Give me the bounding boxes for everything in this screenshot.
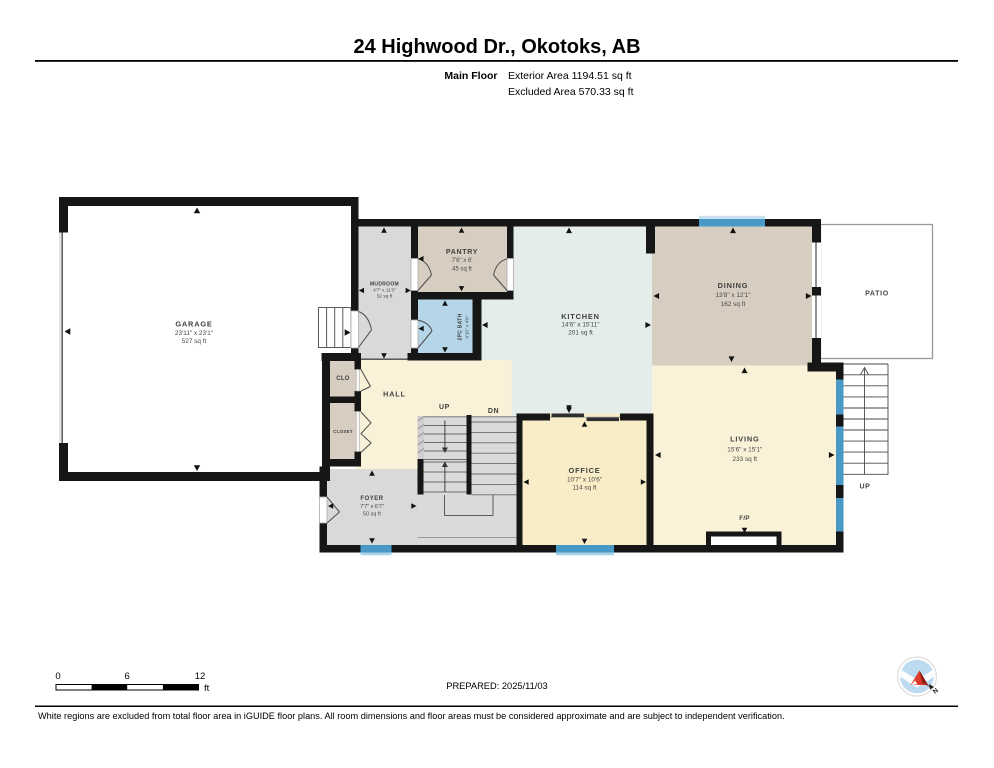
svg-text:13'8" x 12'1": 13'8" x 12'1" (715, 292, 750, 299)
svg-text:White regions are excluded fro: White regions are excluded from total fl… (38, 711, 785, 721)
svg-text:OFFICE: OFFICE (569, 466, 601, 475)
svg-text:PREPARED: 2025/11/03: PREPARED: 2025/11/03 (446, 681, 547, 691)
svg-text:DINING: DINING (718, 281, 749, 290)
svg-text:DN: DN (488, 408, 499, 415)
svg-text:0: 0 (55, 671, 60, 682)
svg-text:CLOSET: CLOSET (333, 429, 353, 434)
svg-text:F/P: F/P (739, 515, 750, 522)
svg-text:15'6" x 15'1": 15'6" x 15'1" (727, 446, 762, 453)
svg-text:4'10" x 4'6": 4'10" x 4'6" (465, 315, 470, 338)
svg-text:14'6" x 15'11": 14'6" x 15'11" (561, 322, 599, 329)
svg-text:7'7" x 6'7": 7'7" x 6'7" (360, 504, 384, 510)
svg-text:24 Highwood Dr., Okotoks, AB: 24 Highwood Dr., Okotoks, AB (353, 36, 640, 58)
svg-text:HALL: HALL (383, 390, 406, 399)
svg-text:201 sq ft: 201 sq ft (568, 329, 593, 336)
svg-text:162 sq ft: 162 sq ft (721, 301, 746, 308)
svg-text:50 sq ft: 50 sq ft (363, 511, 381, 517)
svg-text:12: 12 (195, 671, 206, 682)
svg-text:PATIO: PATIO (865, 291, 889, 298)
svg-text:2PC BATH: 2PC BATH (458, 313, 464, 340)
svg-text:PANTRY: PANTRY (446, 249, 478, 256)
svg-text:KITCHEN: KITCHEN (561, 312, 599, 321)
svg-text:52 sq ft: 52 sq ft (377, 294, 393, 299)
svg-text:527 sq ft: 527 sq ft (182, 338, 207, 345)
svg-text:6: 6 (125, 671, 130, 682)
svg-text:10'7" x 10'6": 10'7" x 10'6" (567, 476, 602, 483)
svg-text:FOYER: FOYER (360, 496, 383, 502)
svg-text:GARAGE: GARAGE (175, 320, 212, 329)
svg-text:Excluded Area 570.33 sq ft: Excluded Area 570.33 sq ft (508, 86, 634, 98)
svg-text:Main Floor: Main Floor (444, 70, 497, 82)
svg-text:UP: UP (439, 404, 450, 411)
svg-text:23'11" x 23'1": 23'11" x 23'1" (175, 330, 213, 337)
svg-text:ft: ft (204, 683, 210, 694)
svg-text:7'6" x 6': 7'6" x 6' (452, 258, 473, 264)
svg-text:114 sq ft: 114 sq ft (572, 485, 596, 492)
svg-text:4'7" x 11'3": 4'7" x 11'3" (373, 288, 396, 293)
svg-text:LIVING: LIVING (730, 435, 759, 444)
svg-text:45 sq ft: 45 sq ft (452, 266, 472, 272)
svg-text:UP: UP (860, 484, 871, 491)
svg-text:Exterior Area 1194.51 sq ft: Exterior Area 1194.51 sq ft (508, 70, 632, 82)
svg-text:CLO: CLO (336, 376, 350, 382)
svg-text:233 sq ft: 233 sq ft (733, 456, 758, 463)
